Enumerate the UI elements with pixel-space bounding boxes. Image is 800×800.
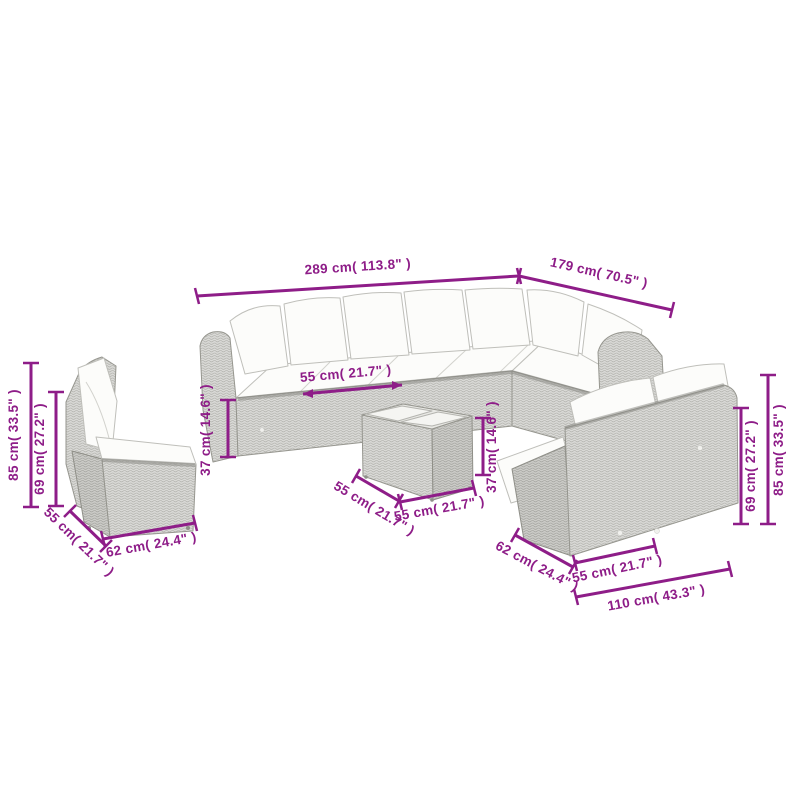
- sofa-back-pillow: [527, 290, 584, 356]
- dimension-label: 37 cm( 14.6" ): [198, 384, 213, 476]
- dimension-bench-total-height: 85 cm( 33.5" ): [760, 375, 786, 524]
- dimension-label: 69 cm( 27.2" ): [32, 403, 47, 495]
- dimension-label: 55 cm( 21.7" ): [571, 552, 664, 586]
- table-base-right-face: [432, 416, 473, 500]
- dimension-label: 37 cm( 14.6" ): [484, 401, 499, 493]
- garden-lounge-set-diagram: 289 cm( 113.8" ) 179 cm( 70.5" ) 85 cm( …: [0, 0, 800, 800]
- sofa-back-pillow: [404, 289, 470, 354]
- dimension-chair-back-height: 69 cm( 27.2" ): [32, 392, 64, 506]
- dimension-label: 69 cm( 27.2" ): [743, 420, 758, 512]
- dimension-label: 85 cm( 33.5" ): [6, 389, 21, 481]
- sofa-back-pillow: [343, 293, 409, 360]
- coffee-table: [362, 404, 473, 502]
- dimension-label: 85 cm( 33.5" ): [771, 404, 786, 496]
- sofa-back-pillow: [230, 306, 288, 374]
- screw-dot: [655, 529, 660, 534]
- screw-dot: [260, 428, 264, 432]
- sofa-back-pillow: [465, 288, 530, 349]
- screw-dot: [618, 531, 623, 536]
- table-foot: [364, 475, 368, 479]
- dimension-label: 289 cm( 113.8" ): [304, 256, 411, 278]
- sofa-back-pillow: [284, 298, 348, 365]
- single-chair: [66, 357, 196, 537]
- dimension-label: 110 cm( 43.3" ): [606, 582, 706, 614]
- screw-dot: [698, 446, 703, 451]
- product-diagram-canvas: 289 cm( 113.8" ) 179 cm( 70.5" ) 85 cm( …: [0, 0, 800, 800]
